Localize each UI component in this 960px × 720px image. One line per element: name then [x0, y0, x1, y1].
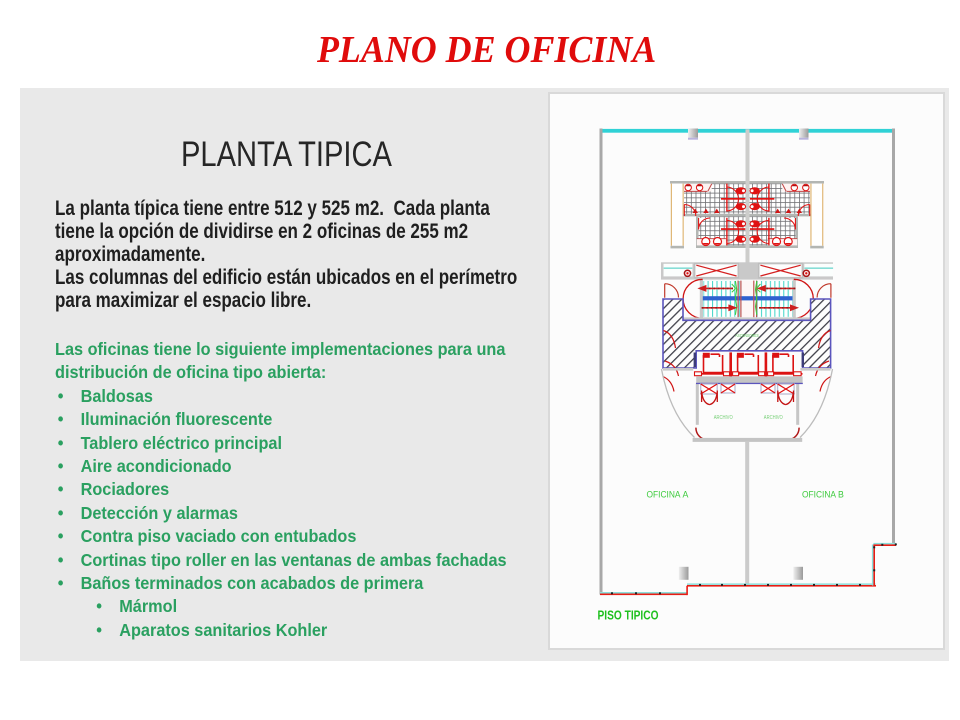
- svg-text:ARCHIVO: ARCHIVO: [714, 415, 733, 421]
- svg-text:B: B: [838, 490, 844, 500]
- svg-text:ASCENSORES: ASCENSORES: [735, 333, 759, 338]
- svg-text:ARCHIVO: ARCHIVO: [764, 415, 783, 421]
- svg-text:OFICINA: OFICINA: [802, 490, 836, 500]
- svg-text:OFICINA: OFICINA: [647, 490, 681, 500]
- svg-text:A: A: [683, 490, 689, 500]
- svg-text:PISO TIPICO: PISO TIPICO: [598, 608, 659, 623]
